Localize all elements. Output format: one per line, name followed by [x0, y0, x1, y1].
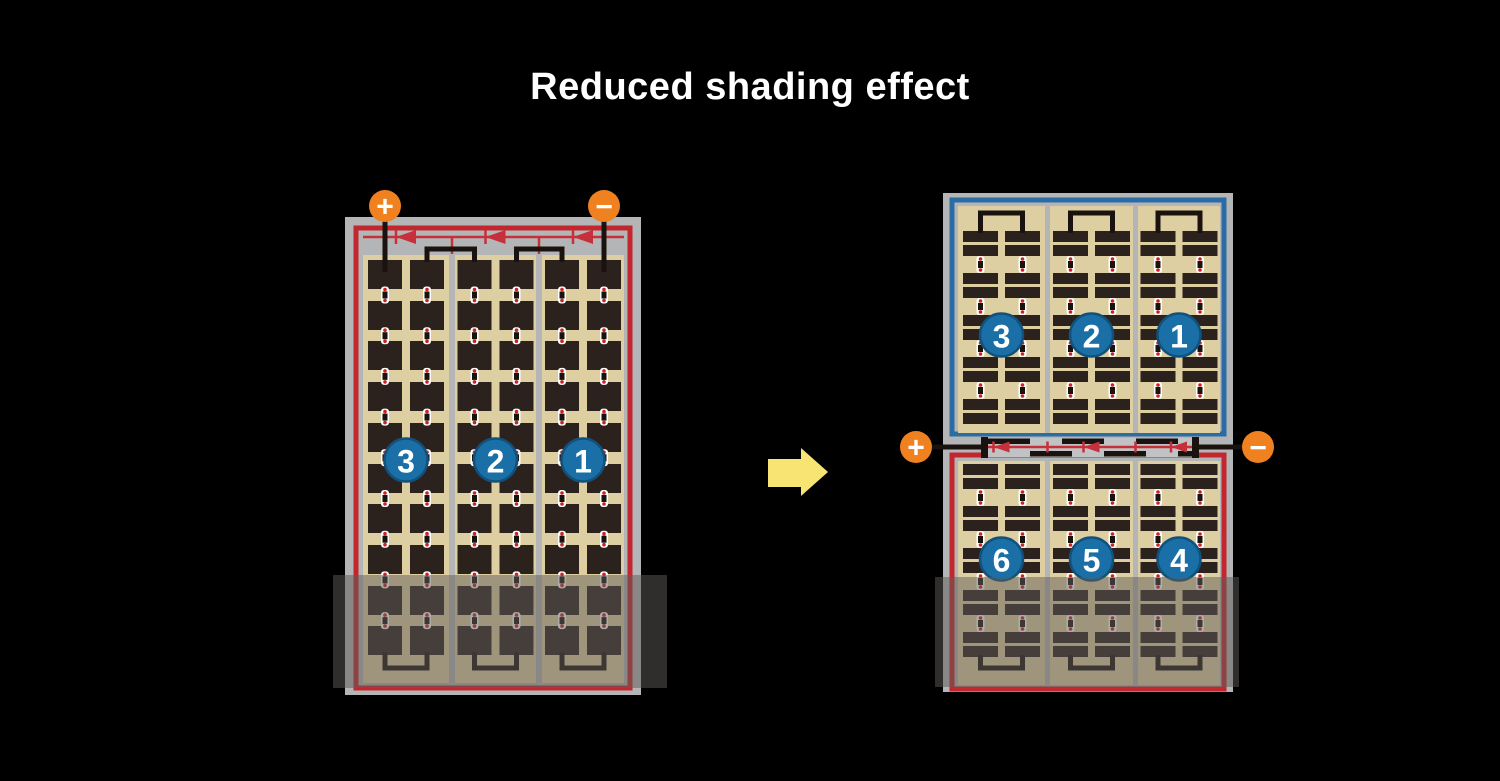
cell-connector-dot: [977, 298, 985, 315]
cell-connector-dot: [1196, 298, 1204, 315]
cell-connector-dot: [423, 327, 431, 344]
cell-connector-dot: [471, 327, 479, 344]
cell-connector-dot: [381, 409, 389, 426]
cell-connector-dot: [977, 489, 985, 506]
cell-connector-dot: [513, 287, 521, 304]
cell-connector-dot: [1154, 489, 1162, 506]
string-number-label: 6: [993, 543, 1011, 579]
cell-connector-dot: [977, 382, 985, 399]
string-number-label: 4: [1170, 543, 1188, 579]
cell-connector-dot: [381, 490, 389, 507]
string-number-badge: 3: [385, 439, 428, 482]
cell-connector-dot: [1196, 382, 1204, 399]
cell-connector-dot: [471, 490, 479, 507]
cell-connector-dot: [1109, 298, 1117, 315]
cell-connector-dot: [1067, 382, 1075, 399]
transition-arrow-icon: [768, 448, 828, 496]
string-number-label: 3: [993, 319, 1011, 355]
cell-connector-dot: [558, 531, 566, 548]
cell-connector-dot: [513, 531, 521, 548]
cell-connector-dot: [1019, 298, 1027, 315]
string-number-badge: 4: [1158, 538, 1201, 581]
cell-connector-dot: [558, 368, 566, 385]
cell-connector-dot: [977, 256, 985, 273]
cell-connector-dot: [1109, 489, 1117, 506]
cell-connector-dot: [1019, 256, 1027, 273]
left-module: +−321: [333, 190, 667, 695]
cell-connector-dot: [423, 531, 431, 548]
terminal-symbol: −: [595, 191, 613, 224]
string-number-badge: 2: [474, 439, 517, 482]
cell-connector-dot: [1067, 489, 1075, 506]
cell-connector-dot: [471, 409, 479, 426]
cell-connector-dot: [1196, 489, 1204, 506]
string-number-badge: 2: [1070, 314, 1113, 357]
canvas: Reduced shading effect +−321+−321654: [0, 0, 1500, 781]
cell-connector-dot: [600, 531, 608, 548]
terminal-symbol: −: [1249, 432, 1267, 465]
cell-connector-dot: [381, 327, 389, 344]
cell-connector-dot: [513, 409, 521, 426]
cell-connector-dot: [381, 368, 389, 385]
string-number-label: 5: [1083, 543, 1101, 579]
cell-connector-dot: [471, 368, 479, 385]
terminal-symbol: +: [376, 191, 394, 224]
cell-connector-dot: [423, 287, 431, 304]
string-number-label: 2: [1083, 319, 1101, 355]
cell-connector-dot: [1067, 298, 1075, 315]
cell-connector-dot: [1109, 256, 1117, 273]
cell-connector-dot: [381, 287, 389, 304]
cell-connector-dot: [600, 287, 608, 304]
cell-connector-dot: [381, 531, 389, 548]
cell-connector-dot: [1154, 256, 1162, 273]
shade-overlay: [333, 575, 667, 688]
string-number-badge: 3: [980, 314, 1023, 357]
cell-connector-dot: [1196, 256, 1204, 273]
cell-connector-dot: [1154, 298, 1162, 315]
shade-overlay: [935, 577, 1239, 687]
cell-connector-dot: [423, 490, 431, 507]
string-number-badge: 1: [562, 439, 605, 482]
cell-connector-dot: [1109, 382, 1117, 399]
cell-connector-dot: [558, 409, 566, 426]
cell-connector-dot: [558, 327, 566, 344]
cell-connector-dot: [600, 409, 608, 426]
string-number-label: 1: [1170, 319, 1188, 355]
cell-connector-dot: [600, 368, 608, 385]
cell-connector-dot: [600, 327, 608, 344]
string-number-badge: 1: [1158, 314, 1201, 357]
cell-connector-dot: [513, 368, 521, 385]
string-number-label: 3: [397, 444, 415, 480]
cell-connector-dot: [600, 490, 608, 507]
cell-connector-dot: [558, 490, 566, 507]
cell-connector-dot: [1019, 489, 1027, 506]
string-number-label: 1: [574, 444, 592, 480]
terminal-symbol: +: [907, 432, 925, 465]
cell-connector-dot: [471, 287, 479, 304]
cell-connector-dot: [513, 327, 521, 344]
negative-terminal: −: [1242, 431, 1274, 465]
cell-connector-dot: [1067, 256, 1075, 273]
cell-connector-dot: [1154, 382, 1162, 399]
shading-diagram: +−321+−321654: [0, 0, 1500, 781]
string-number-label: 2: [487, 444, 505, 480]
string-number-badge: 6: [980, 538, 1023, 581]
cell-connector-dot: [423, 409, 431, 426]
cell-connector-dot: [558, 287, 566, 304]
cell-connector-dot: [513, 490, 521, 507]
cell-connector-dot: [423, 368, 431, 385]
positive-terminal: +: [900, 431, 932, 465]
string-number-badge: 5: [1070, 538, 1113, 581]
cell-connector-dot: [1019, 382, 1027, 399]
right-module: +−321654: [900, 193, 1274, 692]
cell-connector-dot: [471, 531, 479, 548]
